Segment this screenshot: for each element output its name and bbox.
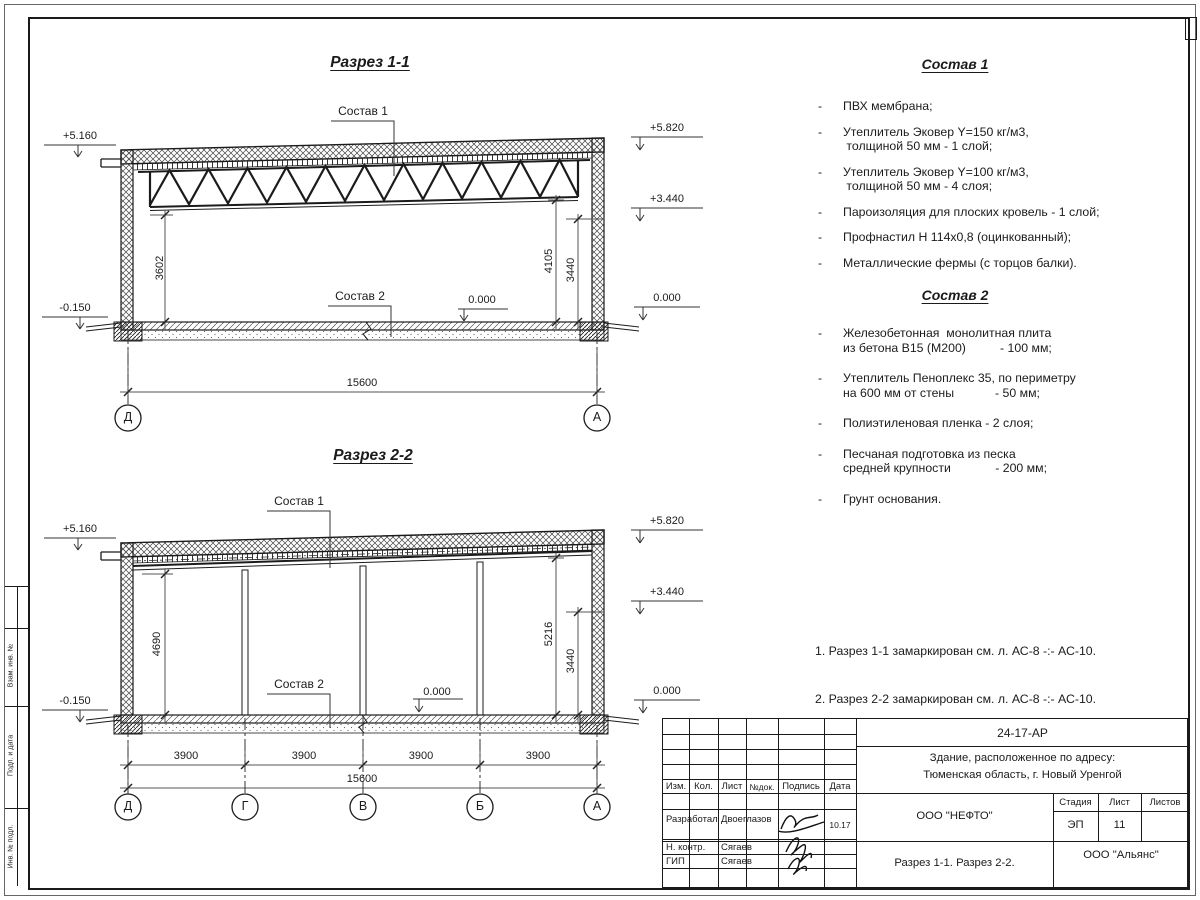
sostav2-heading: Состав 2 bbox=[900, 287, 1010, 303]
item-text: Утеплитель Эковер Y=100 кг/м3, bbox=[843, 165, 1029, 180]
s2-elev-plus3440: +3.440 bbox=[631, 586, 703, 598]
list-item: - Грунт основания. bbox=[818, 492, 1198, 507]
title-block: Изм. Кол. Лист №док. Подпись Дата Разраб… bbox=[662, 718, 1188, 888]
tb-project-line1: Здание, расположенное по адресу: bbox=[856, 752, 1189, 764]
dash-bullet: - bbox=[818, 326, 843, 355]
tb-header-data: Дата bbox=[824, 781, 856, 792]
item-text: Профнастил Н 114х0,8 (оцинкованный); bbox=[843, 230, 1071, 245]
item-text: Песчаная подготовка из песка bbox=[843, 447, 1047, 462]
tb-project-line2: Тюменская область, г. Новый Уренгой bbox=[856, 769, 1189, 781]
item-text: Полиэтиленовая пленка - 2 слоя; bbox=[843, 416, 1033, 431]
s1-sostav2-label: Состав 2 bbox=[325, 289, 395, 303]
s1-dim-15600: 15600 bbox=[332, 377, 392, 389]
tb-role-nkontr: Н. контр. bbox=[666, 842, 705, 853]
s2-elev-zero-floor: 0.000 bbox=[410, 686, 464, 698]
item-text: Утеплитель Пеноплекс 35, по периметру bbox=[843, 371, 1076, 386]
s1-axis-D: Д bbox=[116, 410, 140, 424]
dash-bullet: - bbox=[818, 256, 843, 271]
dash-bullet: - bbox=[818, 165, 843, 194]
s2-elev-plus5820: +5.820 bbox=[631, 515, 703, 527]
s2-elev-plus5160: +5.160 bbox=[44, 523, 116, 535]
tb-header-ndok: №док. bbox=[746, 782, 778, 792]
s1-dim-3602: 3602 bbox=[154, 248, 166, 288]
tb-line bbox=[663, 839, 856, 840]
section-2-2-title: Разрез 2-2 bbox=[308, 447, 438, 465]
tb-date: 10.17 bbox=[824, 820, 856, 830]
tb-line bbox=[663, 734, 856, 735]
s2-axis-D: Д bbox=[116, 799, 140, 813]
tb-header-podpis: Подпись bbox=[778, 781, 824, 792]
tb-header-kol: Кол. bbox=[689, 781, 718, 792]
s1-elev-plus3440: +3.440 bbox=[631, 193, 703, 205]
list-item: - Утеплитель Эковер Y=100 кг/м3, толщино… bbox=[818, 165, 1193, 194]
note-line: 1. Разрез 1-1 замаркирован см. л. АС-8 -… bbox=[815, 643, 1096, 659]
s1-elev-plus5160: +5.160 bbox=[44, 130, 116, 142]
tb-header-sheet: Лист bbox=[1098, 797, 1141, 808]
s2-elev-minus0150: -0.150 bbox=[42, 695, 108, 707]
dash-bullet: - bbox=[818, 371, 843, 400]
s2-sostav2-label: Состав 2 bbox=[264, 677, 334, 691]
list-item: - Пароизоляция для плоских кровель - 1 с… bbox=[818, 205, 1193, 220]
s2-sostav1-label: Состав 1 bbox=[264, 494, 334, 508]
note-line: 2. Разрез 2-2 замаркирован см. л. АС-8 -… bbox=[815, 691, 1096, 707]
tb-company: ООО "Альянс" bbox=[1053, 849, 1189, 861]
s2-dim-4690: 4690 bbox=[151, 624, 163, 664]
s2-axis-B: Б bbox=[468, 799, 492, 813]
item-text: толщиной 50 мм - 4 слоя; bbox=[843, 179, 1029, 194]
tb-line bbox=[718, 719, 719, 889]
item-text: Металлические фермы (с торцов балки). bbox=[843, 256, 1077, 271]
s2-axis-A: А bbox=[585, 799, 609, 813]
dash-bullet: - bbox=[818, 125, 843, 154]
tb-stadia-value: ЭП bbox=[1053, 819, 1098, 831]
tb-line bbox=[663, 764, 856, 765]
drawing-sheet: Взам. инв. № Подп. и дата Инв. № подл. bbox=[0, 0, 1200, 900]
tb-doc-number: 24-17-АР bbox=[856, 726, 1189, 740]
section-1-1-title: Разрез 1-1 bbox=[305, 54, 435, 72]
s1-sostav1-label: Состав 1 bbox=[328, 104, 398, 118]
list-item: - Металлические фермы (с торцов балки). bbox=[818, 256, 1193, 271]
tb-org: ООО "НЕФТО" bbox=[856, 810, 1053, 822]
tb-line bbox=[663, 868, 856, 869]
tb-line bbox=[663, 749, 856, 750]
s2-dim-15600: 15600 bbox=[332, 773, 392, 785]
tb-name-syagaev1: Сягаев bbox=[721, 842, 752, 853]
s1-dim-3440: 3440 bbox=[565, 250, 577, 290]
item-text: средней крупности - 200 мм; bbox=[843, 461, 1047, 476]
tb-name-syagaev2: Сягаев bbox=[721, 856, 752, 867]
dash-bullet: - bbox=[818, 492, 843, 507]
s1-elev-plus5820: +5.820 bbox=[631, 122, 703, 134]
dash-bullet: - bbox=[818, 447, 843, 476]
s2-dim-3900-1: 3900 bbox=[161, 750, 211, 762]
list-item: - Утеплитель Пеноплекс 35, по периметрун… bbox=[818, 371, 1198, 400]
list-item: - Утеплитель Эковер Y=150 кг/м3, толщино… bbox=[818, 125, 1193, 154]
tb-header-izm: Изм. bbox=[663, 781, 689, 792]
list-item: - Профнастил Н 114х0,8 (оцинкованный); bbox=[818, 230, 1193, 245]
item-text: Пароизоляция для плоских кровель - 1 сло… bbox=[843, 205, 1100, 220]
sostav2-list: - Железобетонная монолитная плитаиз бето… bbox=[818, 326, 1198, 522]
list-item: - ПВХ мембрана; bbox=[818, 99, 1193, 114]
dash-bullet: - bbox=[818, 99, 843, 114]
tb-role-gip: ГИП bbox=[666, 856, 685, 867]
s1-elev-zero-right: 0.000 bbox=[634, 292, 700, 304]
item-text: из бетона В15 (М200) - 100 мм; bbox=[843, 341, 1052, 356]
s1-elev-zero-floor: 0.000 bbox=[455, 294, 509, 306]
s1-axis-A: А bbox=[585, 410, 609, 424]
tb-header-sheets: Листов bbox=[1141, 797, 1189, 808]
item-text: Грунт основания. bbox=[843, 492, 941, 507]
tb-line bbox=[663, 779, 856, 780]
s2-elev-zero-right: 0.000 bbox=[634, 685, 700, 697]
item-text: толщиной 50 мм - 1 слой; bbox=[843, 139, 1029, 154]
s2-dim-5216: 5216 bbox=[543, 614, 555, 654]
tb-line bbox=[824, 719, 825, 889]
dash-bullet: - bbox=[818, 230, 843, 245]
dash-bullet: - bbox=[818, 205, 843, 220]
s2-dim-3900-4: 3900 bbox=[513, 750, 563, 762]
tb-line bbox=[1053, 811, 1189, 812]
tb-sheet-value: 11 bbox=[1098, 819, 1141, 831]
s2-axis-G: Г bbox=[233, 799, 257, 813]
s2-dim-3900-2: 3900 bbox=[279, 750, 329, 762]
sostav1-list: - ПВХ мембрана; - Утеплитель Эковер Y=15… bbox=[818, 99, 1193, 281]
s2-dim-3900-3: 3900 bbox=[396, 750, 446, 762]
list-item: - Железобетонная монолитная плитаиз бето… bbox=[818, 326, 1198, 355]
item-text: Утеплитель Эковер Y=150 кг/м3, bbox=[843, 125, 1029, 140]
s1-dim-4105: 4105 bbox=[543, 241, 555, 281]
tb-line bbox=[663, 854, 856, 855]
s2-axis-V: В bbox=[351, 799, 375, 813]
dash-bullet: - bbox=[818, 416, 843, 431]
tb-name-dvoyeglazov: Двоеглазов bbox=[721, 814, 772, 825]
tb-line bbox=[778, 719, 779, 889]
s2-dim-3440: 3440 bbox=[565, 641, 577, 681]
item-text: Железобетонная монолитная плита bbox=[843, 326, 1052, 341]
list-item: - Песчаная подготовка из пескасредней кр… bbox=[818, 447, 1198, 476]
tb-sheet-title: Разрез 1-1. Разрез 2-2. bbox=[856, 857, 1053, 869]
tb-line bbox=[663, 793, 1189, 794]
tb-header-list: Лист bbox=[718, 781, 746, 792]
tb-line bbox=[689, 719, 690, 889]
tb-line bbox=[856, 746, 1189, 747]
item-text: на 600 мм от стены - 50 мм; bbox=[843, 386, 1076, 401]
tb-header-stadia: Стадия bbox=[1053, 797, 1098, 808]
item-text: ПВХ мембрана; bbox=[843, 99, 933, 114]
tb-line bbox=[663, 809, 856, 810]
s1-elev-minus0150: -0.150 bbox=[42, 302, 108, 314]
list-item: - Полиэтиленовая пленка - 2 слоя; bbox=[818, 416, 1198, 431]
sostav1-heading: Состав 1 bbox=[900, 56, 1010, 72]
tb-role-razrabotal: Разработал bbox=[666, 814, 718, 825]
